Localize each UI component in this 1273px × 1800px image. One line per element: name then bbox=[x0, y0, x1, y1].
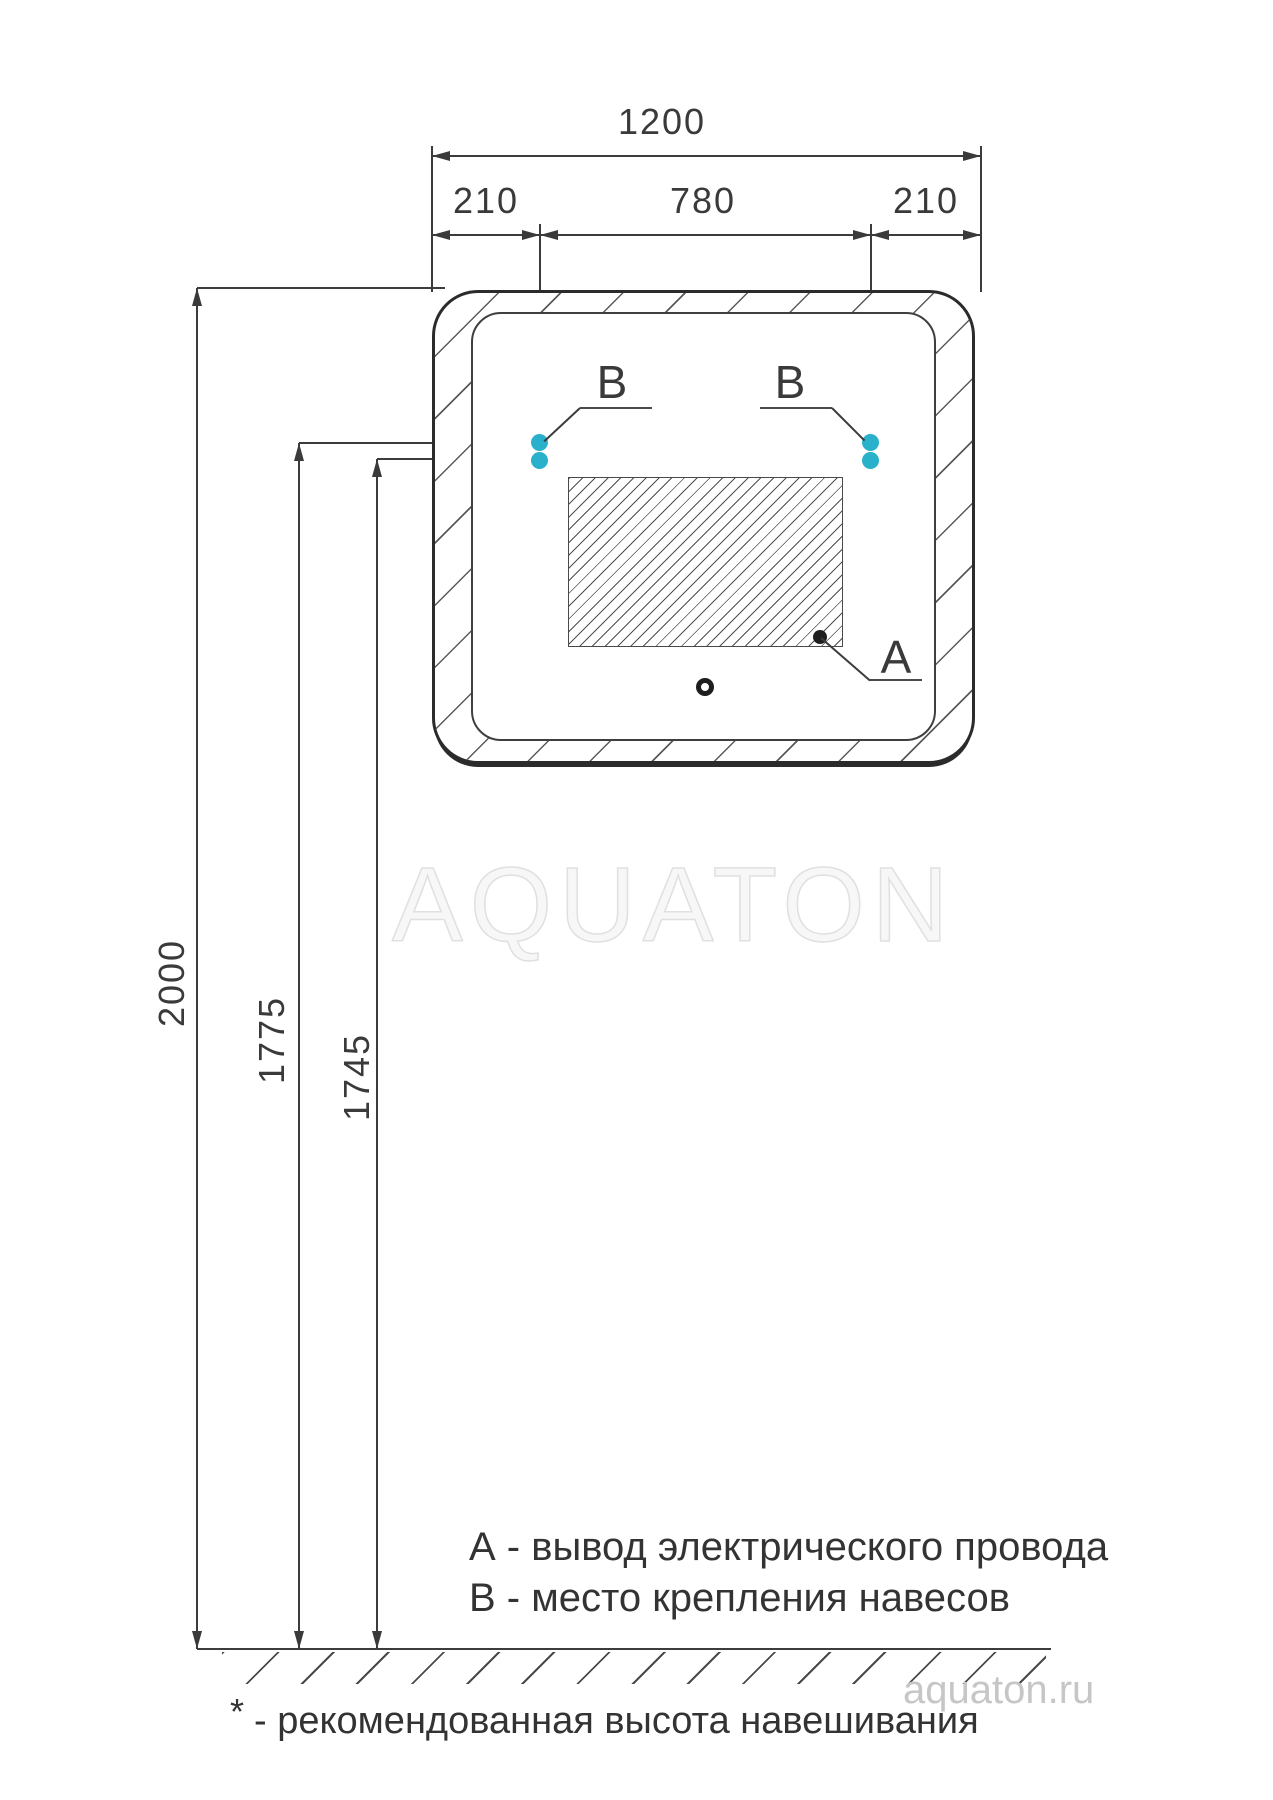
mount-point-left-upper bbox=[531, 434, 548, 451]
arrow-down-icon bbox=[372, 1631, 382, 1649]
legend: А - вывод электрического провода В - мес… bbox=[469, 1522, 1108, 1624]
footnote: *- рекомендованная высота навешивания bbox=[230, 1700, 979, 1743]
technical-drawing-mirror: 1200 210 780 210 2000 1775 bbox=[0, 0, 1273, 1800]
arrow-up-icon bbox=[192, 288, 202, 306]
mount-point-right-upper bbox=[862, 434, 879, 451]
callout-b-right-label: B bbox=[775, 355, 806, 409]
arrow-left-icon bbox=[432, 230, 450, 240]
mount-point-left-lower bbox=[531, 452, 548, 469]
mount-point-right-lower bbox=[862, 452, 879, 469]
arrow-right-icon bbox=[963, 151, 981, 161]
callout-b-left-label: B bbox=[597, 355, 628, 409]
arrow-up-icon bbox=[294, 443, 304, 461]
dim-total-width-label: 1200 bbox=[618, 101, 706, 143]
arrow-down-icon bbox=[192, 1631, 202, 1649]
arrow-left-icon bbox=[871, 230, 889, 240]
arrow-left-icon bbox=[432, 151, 450, 161]
touch-sensor-icon bbox=[696, 678, 714, 696]
arrow-up-icon bbox=[372, 459, 382, 477]
dim-right-offset-label: 210 bbox=[893, 180, 959, 222]
dim-center-span-label: 780 bbox=[670, 180, 736, 222]
legend-line-b: В - место крепления навесов bbox=[469, 1573, 1108, 1624]
arrow-right-icon bbox=[963, 230, 981, 240]
footnote-asterisk: * bbox=[230, 1691, 244, 1733]
dim-total-height-label: 2000 bbox=[151, 939, 193, 1027]
footnote-text: - рекомендованная высота навешивания bbox=[254, 1700, 979, 1742]
dim-upper-hole-label: 1775 bbox=[251, 996, 293, 1084]
site-watermark: aquaton.ru bbox=[903, 1668, 1094, 1713]
callout-a-label: A bbox=[881, 630, 912, 684]
dim-left-offset-label: 210 bbox=[453, 180, 519, 222]
legend-line-a: А - вывод электрического провода bbox=[469, 1522, 1108, 1573]
led-panel-hatch bbox=[568, 477, 843, 647]
arrow-down-icon bbox=[294, 1631, 304, 1649]
arrow-left-icon bbox=[540, 230, 558, 240]
arrow-right-icon bbox=[853, 230, 871, 240]
brand-watermark: AQUATON bbox=[392, 845, 955, 966]
dim-lower-hole-label: 1745 bbox=[336, 1033, 378, 1121]
arrow-right-icon bbox=[522, 230, 540, 240]
